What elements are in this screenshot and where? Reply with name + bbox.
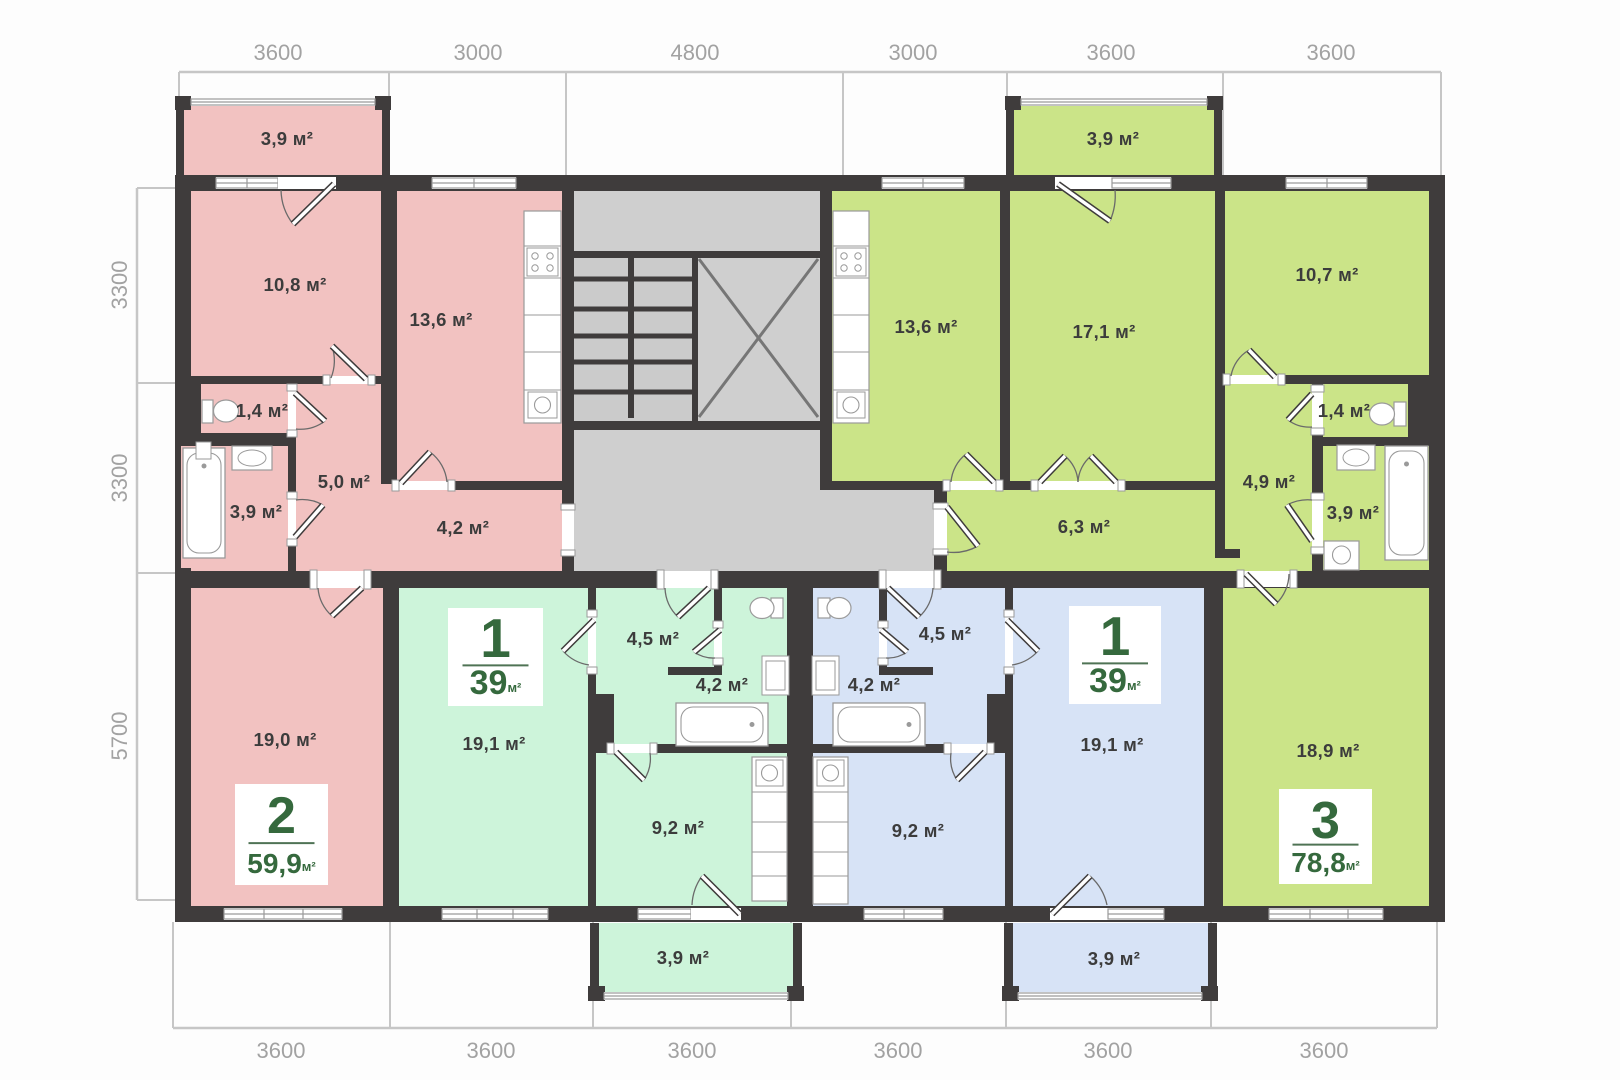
- svg-text:3600: 3600: [1087, 40, 1136, 65]
- svg-text:3600: 3600: [467, 1038, 516, 1063]
- svg-text:17,1 м²: 17,1 м²: [1072, 321, 1135, 342]
- svg-text:3600: 3600: [1307, 40, 1356, 65]
- svg-text:5700: 5700: [107, 712, 132, 761]
- svg-text:13,6 м²: 13,6 м²: [409, 309, 472, 330]
- svg-text:3600: 3600: [874, 1038, 923, 1063]
- svg-text:4,2 м²: 4,2 м²: [437, 517, 490, 538]
- svg-text:9,2 м²: 9,2 м²: [892, 820, 945, 841]
- svg-text:4,2 м²: 4,2 м²: [696, 674, 749, 695]
- svg-text:1: 1: [480, 607, 511, 669]
- svg-text:3600: 3600: [257, 1038, 306, 1063]
- svg-text:3,9 м²: 3,9 м²: [1088, 948, 1141, 969]
- svg-text:3600: 3600: [668, 1038, 717, 1063]
- svg-text:3,9 м²: 3,9 м²: [1087, 128, 1140, 149]
- svg-text:3,9 м²: 3,9 м²: [230, 501, 283, 522]
- svg-text:3,9 м²: 3,9 м²: [1327, 502, 1380, 523]
- svg-text:4,5 м²: 4,5 м²: [627, 628, 680, 649]
- svg-text:3000: 3000: [454, 40, 503, 65]
- svg-text:10,7 м²: 10,7 м²: [1295, 264, 1358, 285]
- svg-text:3300: 3300: [107, 454, 132, 503]
- svg-text:4,9 м²: 4,9 м²: [1243, 471, 1296, 492]
- svg-text:4800: 4800: [671, 40, 720, 65]
- svg-text:19,1 м²: 19,1 м²: [1080, 734, 1143, 755]
- svg-text:3600: 3600: [254, 40, 303, 65]
- svg-text:3,9 м²: 3,9 м²: [261, 128, 314, 149]
- svg-text:3600: 3600: [1084, 1038, 1133, 1063]
- svg-text:3300: 3300: [107, 261, 132, 310]
- svg-text:5,0 м²: 5,0 м²: [318, 471, 371, 492]
- svg-text:10,8 м²: 10,8 м²: [263, 274, 326, 295]
- svg-text:13,6 м²: 13,6 м²: [894, 316, 957, 337]
- svg-text:6,3 м²: 6,3 м²: [1058, 516, 1111, 537]
- svg-text:4,2 м²: 4,2 м²: [848, 674, 901, 695]
- svg-text:1,4 м²: 1,4 м²: [1318, 400, 1371, 421]
- svg-text:3600: 3600: [1300, 1038, 1349, 1063]
- svg-text:3: 3: [1311, 792, 1340, 850]
- svg-text:18,9 м²: 18,9 м²: [1296, 740, 1359, 761]
- svg-text:1,4 м²: 1,4 м²: [236, 400, 289, 421]
- svg-text:3000: 3000: [889, 40, 938, 65]
- svg-text:19,0 м²: 19,0 м²: [253, 729, 316, 750]
- svg-text:3,9 м²: 3,9 м²: [657, 947, 710, 968]
- svg-text:4,5 м²: 4,5 м²: [919, 623, 972, 644]
- svg-text:2: 2: [267, 787, 296, 845]
- svg-text:19,1 м²: 19,1 м²: [462, 733, 525, 754]
- svg-text:1: 1: [1100, 605, 1131, 667]
- svg-text:9,2 м²: 9,2 м²: [652, 817, 705, 838]
